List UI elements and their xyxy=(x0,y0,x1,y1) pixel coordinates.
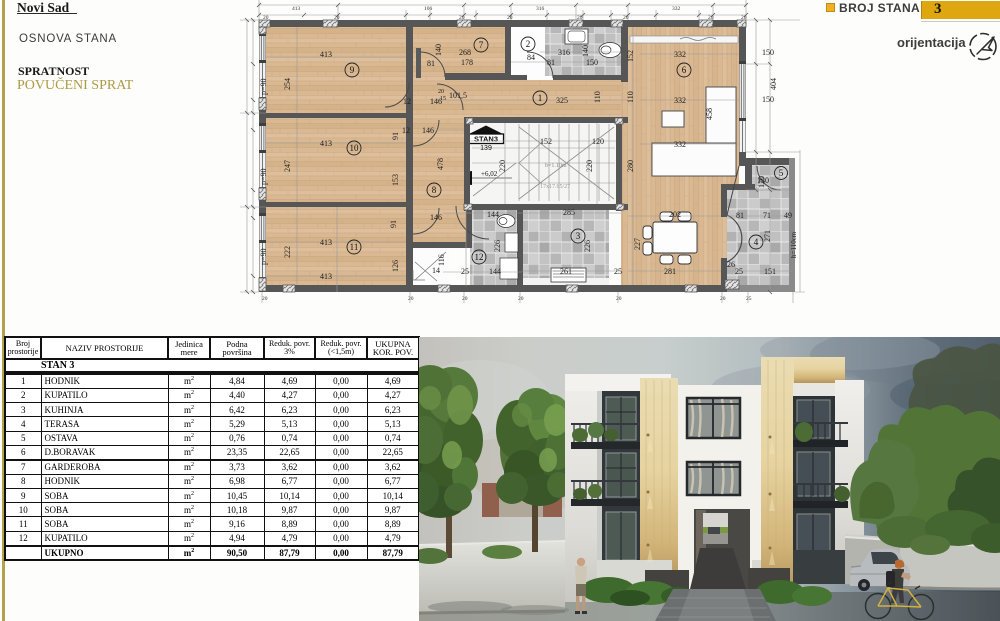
svg-text:20: 20 xyxy=(334,15,340,21)
svg-text:140: 140 xyxy=(581,45,590,57)
svg-text:332: 332 xyxy=(672,6,681,12)
svg-text:146: 146 xyxy=(430,213,442,222)
svg-text:404: 404 xyxy=(769,78,778,90)
svg-text:268: 268 xyxy=(459,48,471,57)
svg-text:6: 6 xyxy=(682,65,687,75)
svg-text:413: 413 xyxy=(320,50,332,59)
svg-text:20: 20 xyxy=(577,15,583,21)
svg-text:71: 71 xyxy=(763,211,771,220)
svg-text:140: 140 xyxy=(434,44,443,56)
svg-text:20: 20 xyxy=(623,15,629,21)
svg-text:20: 20 xyxy=(518,296,524,302)
svg-text:+6,02: +6,02 xyxy=(481,170,498,178)
svg-text:110: 110 xyxy=(593,91,602,103)
svg-text:316: 316 xyxy=(558,48,570,57)
svg-text:254: 254 xyxy=(283,78,292,90)
svg-text:458: 458 xyxy=(705,108,714,120)
svg-text:20: 20 xyxy=(462,296,468,302)
svg-text:49: 49 xyxy=(784,211,792,220)
svg-text:150: 150 xyxy=(762,95,774,104)
svg-text:413: 413 xyxy=(320,238,332,247)
svg-text:226: 226 xyxy=(493,240,502,252)
svg-text:101,5: 101,5 xyxy=(449,91,467,100)
svg-text:20: 20 xyxy=(741,15,747,21)
svg-text:120: 120 xyxy=(592,137,604,146)
svg-text:p=90: p=90 xyxy=(259,248,268,265)
svg-text:20: 20 xyxy=(408,296,414,302)
svg-text:285: 285 xyxy=(563,208,575,217)
svg-text:110: 110 xyxy=(626,91,635,103)
svg-text:25: 25 xyxy=(746,296,752,302)
svg-text:316: 316 xyxy=(536,6,545,12)
svg-text:81: 81 xyxy=(547,58,555,67)
svg-text:20: 20 xyxy=(720,296,726,302)
svg-text:227: 227 xyxy=(633,238,642,250)
svg-text:178: 178 xyxy=(461,58,473,67)
svg-text:h=110cm: h=110cm xyxy=(790,231,798,258)
svg-text:144: 144 xyxy=(487,210,499,219)
svg-text:20: 20 xyxy=(262,296,268,302)
svg-text:3: 3 xyxy=(576,231,581,241)
svg-text:139: 139 xyxy=(480,145,492,152)
svg-text:2: 2 xyxy=(526,39,531,49)
svg-text:332: 332 xyxy=(674,50,686,59)
svg-text:220: 220 xyxy=(498,160,507,172)
svg-text:202: 202 xyxy=(669,210,681,219)
svg-text:20: 20 xyxy=(507,15,513,21)
svg-text:247: 247 xyxy=(283,160,292,172)
svg-text:5: 5 xyxy=(779,168,784,178)
svg-text:4: 4 xyxy=(754,237,759,247)
svg-text:220: 220 xyxy=(585,160,594,172)
svg-text:12: 12 xyxy=(403,97,411,106)
svg-text:14: 14 xyxy=(432,266,440,275)
svg-text:146: 146 xyxy=(430,97,442,106)
svg-text:12: 12 xyxy=(475,252,484,262)
svg-text:281: 281 xyxy=(664,267,676,276)
svg-text:261: 261 xyxy=(560,267,572,276)
svg-text:20: 20 xyxy=(616,296,622,302)
svg-text:b=1.10m: b=1.10m xyxy=(545,163,567,169)
svg-text:20: 20 xyxy=(459,15,465,21)
svg-text:144: 144 xyxy=(489,267,501,276)
svg-text:150: 150 xyxy=(586,58,598,67)
svg-text:226: 226 xyxy=(583,240,592,252)
svg-text:STAN3: STAN3 xyxy=(474,135,498,144)
svg-text:81: 81 xyxy=(736,211,744,220)
svg-text:150: 150 xyxy=(762,48,774,57)
svg-text:12: 12 xyxy=(402,126,410,135)
svg-text:153: 153 xyxy=(391,174,400,186)
svg-text:91: 91 xyxy=(391,132,400,140)
svg-text:p=90: p=90 xyxy=(259,168,268,185)
svg-text:20: 20 xyxy=(708,15,714,21)
svg-text:25: 25 xyxy=(735,267,743,276)
svg-text:280: 280 xyxy=(626,160,635,172)
svg-text:10: 10 xyxy=(350,143,360,153)
svg-text:p=90: p=90 xyxy=(259,78,268,95)
svg-text:11: 11 xyxy=(350,242,359,252)
svg-text:17x17.65/27: 17x17.65/27 xyxy=(540,184,570,190)
svg-text:146: 146 xyxy=(422,126,434,135)
svg-text:106: 106 xyxy=(424,6,433,12)
svg-text:152: 152 xyxy=(540,137,552,146)
svg-text:413: 413 xyxy=(320,139,332,148)
svg-text:130: 130 xyxy=(757,176,769,185)
svg-text:413: 413 xyxy=(320,272,332,281)
svg-text:26: 26 xyxy=(727,260,735,269)
svg-text:151: 151 xyxy=(764,267,776,276)
svg-text:9: 9 xyxy=(350,65,355,75)
svg-text:1: 1 xyxy=(538,93,543,103)
svg-text:81: 81 xyxy=(427,59,435,68)
svg-text:7: 7 xyxy=(479,40,484,50)
svg-text:325: 325 xyxy=(556,96,568,105)
svg-text:116: 116 xyxy=(437,254,446,266)
svg-text:332: 332 xyxy=(674,140,686,149)
svg-text:25: 25 xyxy=(461,267,469,276)
svg-text:20: 20 xyxy=(263,15,269,21)
svg-text:271: 271 xyxy=(763,230,772,242)
svg-text:25: 25 xyxy=(614,267,622,276)
svg-text:332: 332 xyxy=(674,96,686,105)
svg-text:20: 20 xyxy=(438,89,444,95)
svg-text:478: 478 xyxy=(436,158,445,170)
svg-text:152: 152 xyxy=(626,50,635,62)
svg-text:222: 222 xyxy=(283,246,292,258)
svg-text:91: 91 xyxy=(389,220,398,228)
svg-text:8: 8 xyxy=(432,185,437,195)
svg-text:84: 84 xyxy=(527,53,535,62)
svg-text:126: 126 xyxy=(391,260,400,272)
svg-text:413: 413 xyxy=(292,6,301,12)
